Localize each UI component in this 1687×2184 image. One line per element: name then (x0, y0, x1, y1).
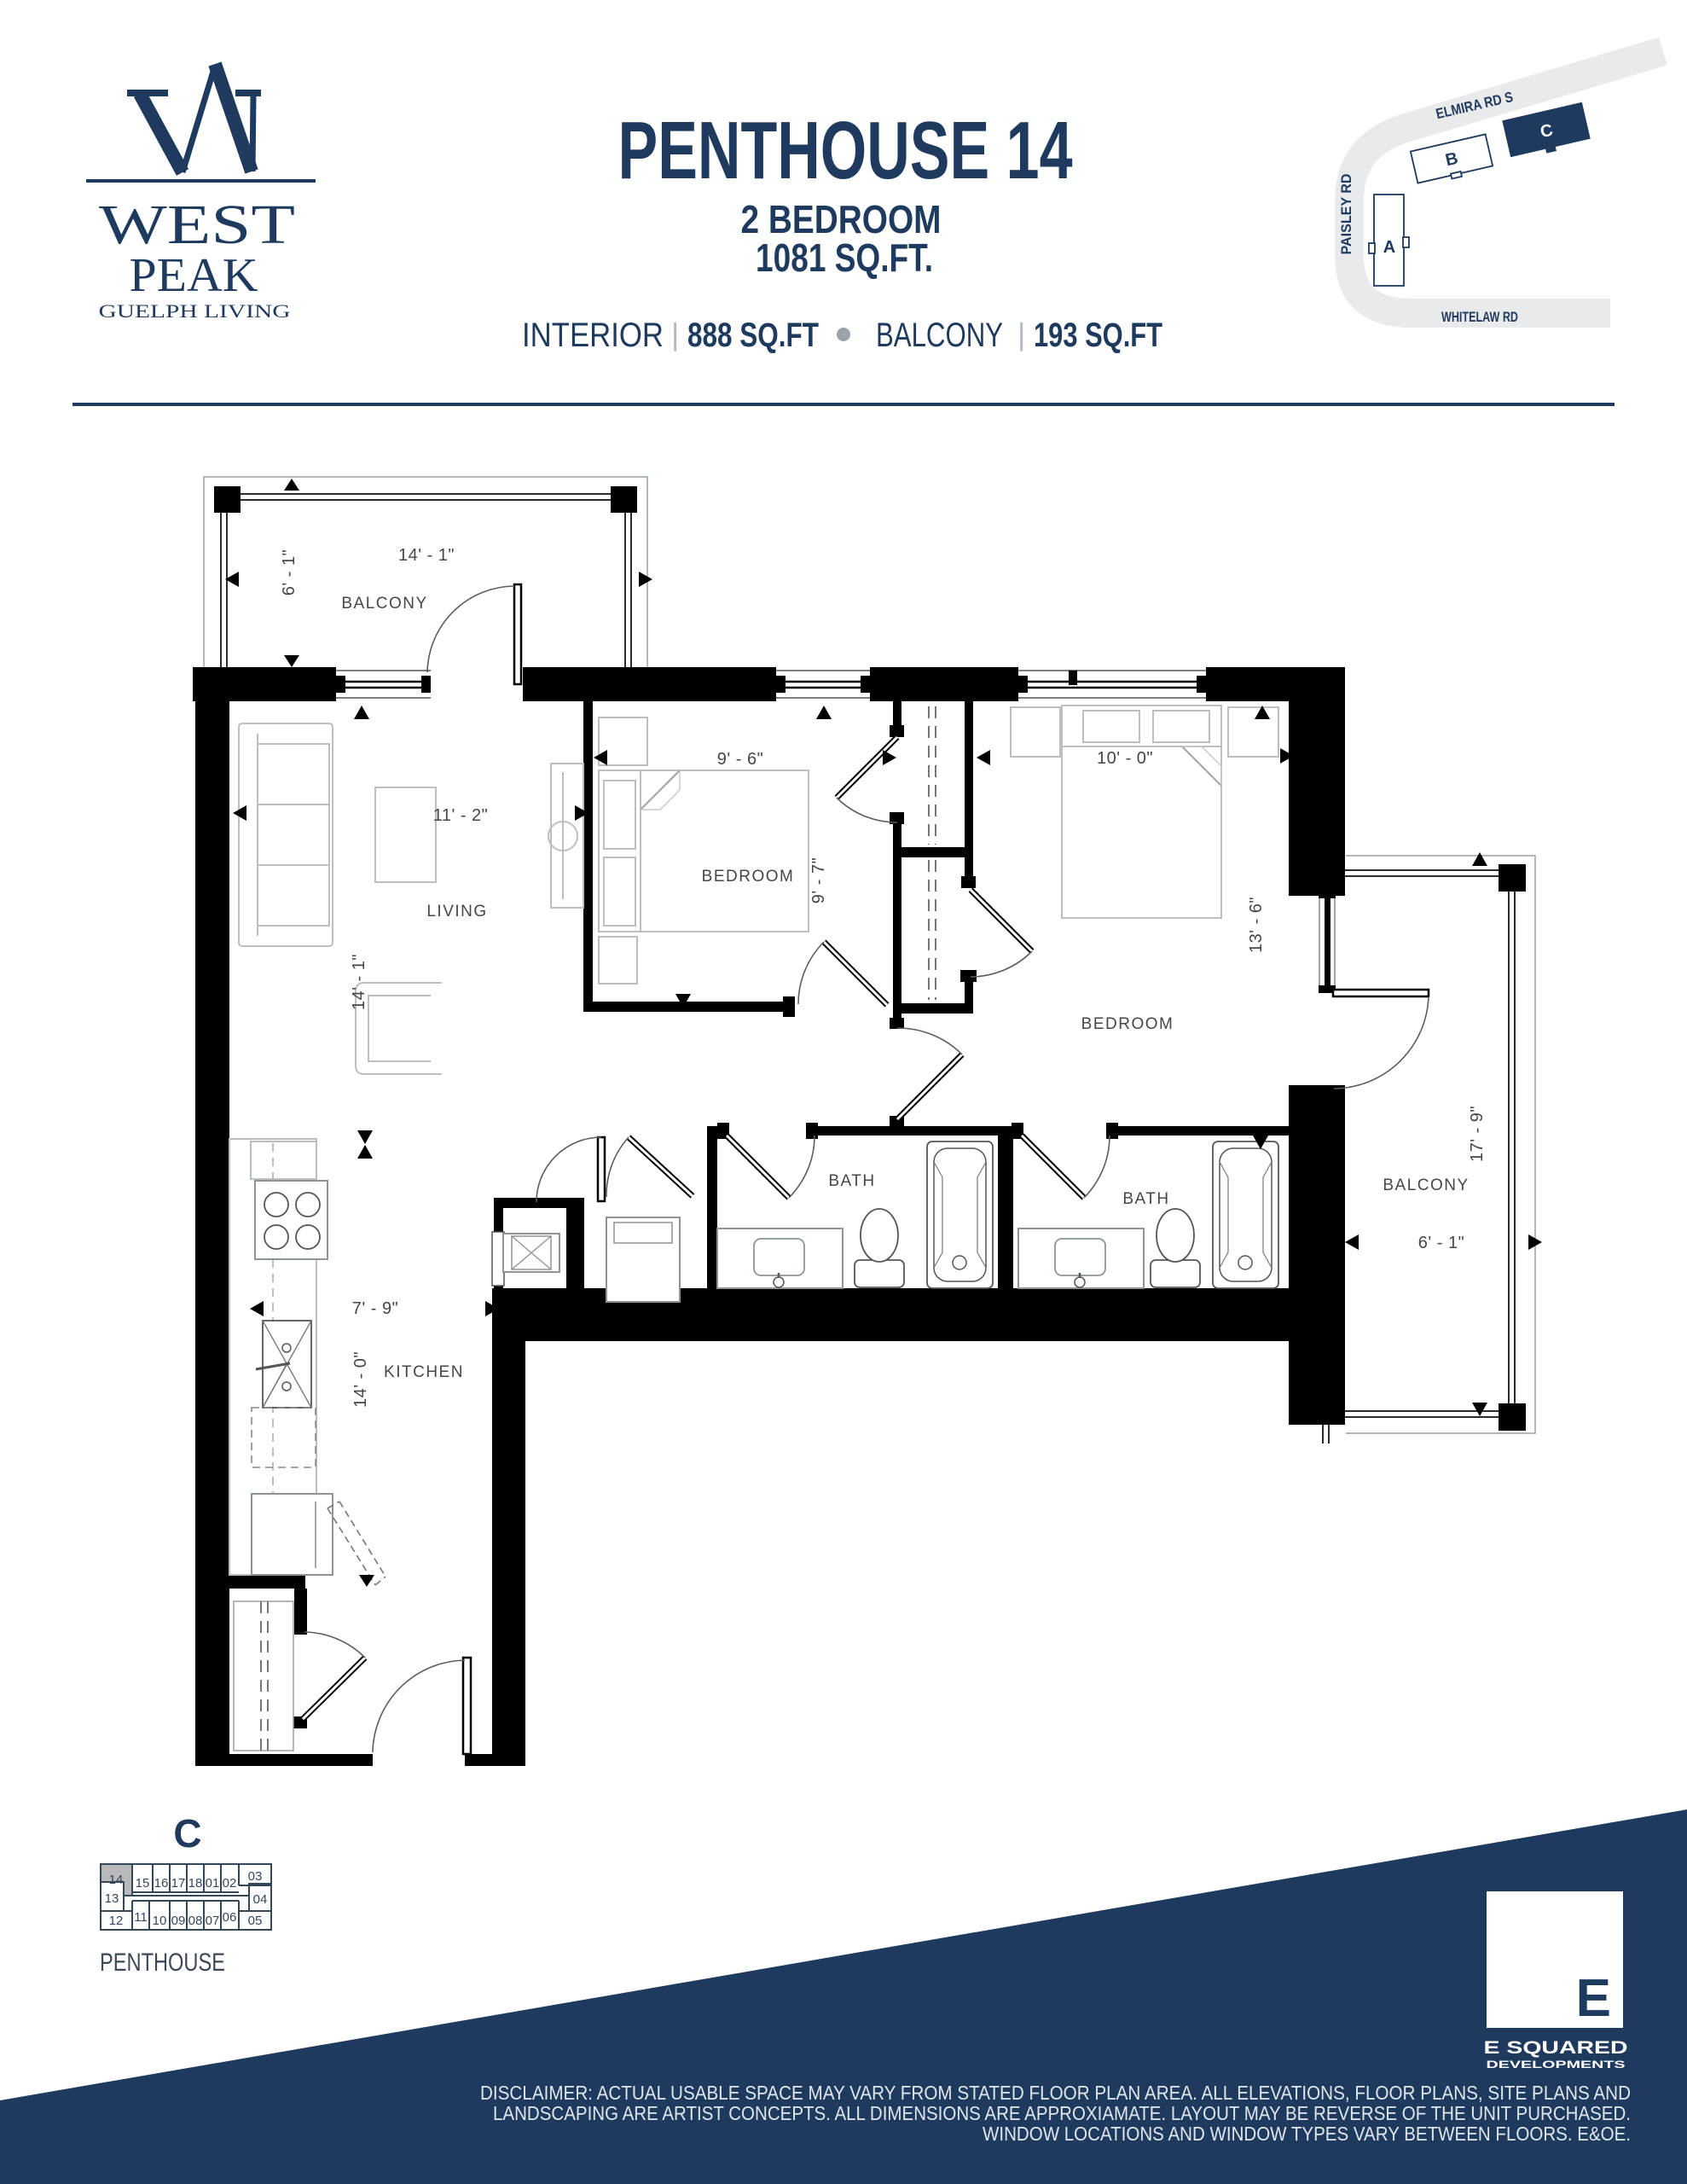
svg-text:193 SQ.FT: 193 SQ.FT (1034, 317, 1162, 354)
svg-text:17' - 9": 17' - 9" (1468, 1106, 1487, 1162)
svg-text:E SQUARED: E SQUARED (1484, 2038, 1628, 2058)
svg-text:LIVING: LIVING (426, 903, 487, 921)
svg-text:9' - 6": 9' - 6" (717, 750, 763, 769)
svg-text:BALCONY: BALCONY (1383, 1176, 1469, 1194)
svg-text:DISCLAIMER: ACTUAL USABLE SPAC: DISCLAIMER: ACTUAL USABLE SPACE MAY VARY… (480, 2082, 1631, 2104)
svg-text:PENTHOUSE 14: PENTHOUSE 14 (618, 105, 1073, 196)
svg-text:02: 02 (223, 1876, 237, 1891)
svg-text:10: 10 (153, 1914, 167, 1928)
svg-text:9' - 7": 9' - 7" (809, 857, 828, 903)
svg-text:WEST: WEST (99, 194, 295, 256)
svg-text:7' - 9": 7' - 9" (352, 1299, 398, 1318)
svg-text:PEAK: PEAK (130, 249, 258, 302)
svg-text:GUELPH LIVING: GUELPH LIVING (99, 300, 291, 322)
svg-text:A: A (1383, 238, 1395, 257)
svg-text:18: 18 (188, 1876, 203, 1891)
svg-text:14' - 1": 14' - 1" (398, 546, 455, 565)
svg-text:6' - 1": 6' - 1" (280, 549, 299, 595)
svg-text:WHITELAW RD: WHITELAW RD (1441, 309, 1518, 325)
svg-text:6' - 1": 6' - 1" (1418, 1234, 1464, 1252)
svg-text:PAISLEY RD: PAISLEY RD (1338, 174, 1354, 255)
svg-text:1081 SQ.FT.: 1081 SQ.FT. (756, 235, 933, 280)
svg-text:11' - 2": 11' - 2" (433, 806, 489, 825)
svg-text:05: 05 (248, 1914, 263, 1928)
svg-text:08: 08 (188, 1914, 203, 1928)
svg-text:LANDSCAPING ARE ARTIST CONCEPT: LANDSCAPING ARE ARTIST CONCEPTS. ALL DIM… (493, 2102, 1631, 2124)
svg-text:BATH: BATH (828, 1172, 875, 1190)
svg-text:WINDOW LOCATIONS AND WINDOW TY: WINDOW LOCATIONS AND WINDOW TYPES VARY B… (983, 2123, 1631, 2145)
svg-text:07: 07 (206, 1914, 220, 1928)
svg-text:10' - 0": 10' - 0" (1097, 749, 1153, 768)
svg-text:01: 01 (206, 1876, 220, 1891)
svg-text:14: 14 (109, 1873, 124, 1887)
svg-text:BATH: BATH (1122, 1190, 1169, 1208)
svg-text:PENTHOUSE: PENTHOUSE (100, 1949, 225, 1977)
svg-text:11: 11 (134, 1910, 148, 1925)
svg-text:13: 13 (105, 1891, 119, 1906)
svg-text:BEDROOM: BEDROOM (702, 868, 795, 886)
svg-text:14' - 0": 14' - 0" (351, 1351, 370, 1408)
svg-text:DEVELOPMENTS: DEVELOPMENTS (1487, 2059, 1626, 2071)
svg-text:04: 04 (253, 1892, 268, 1907)
svg-text:09: 09 (171, 1914, 186, 1928)
svg-text:C: C (173, 1811, 201, 1856)
svg-text:12: 12 (109, 1914, 124, 1928)
svg-text:13' - 6": 13' - 6" (1247, 897, 1266, 953)
svg-text:|: | (1017, 317, 1025, 351)
svg-text:KITCHEN: KITCHEN (384, 1363, 464, 1381)
svg-text:BALCONY: BALCONY (341, 595, 427, 613)
svg-text:888 SQ.FT: 888 SQ.FT (687, 317, 819, 354)
svg-text:15: 15 (136, 1876, 150, 1891)
svg-text:16: 16 (154, 1876, 169, 1891)
svg-text:INTERIOR: INTERIOR (522, 317, 664, 354)
svg-text:14' - 1": 14' - 1" (350, 954, 368, 1010)
svg-text:E: E (1576, 1969, 1611, 2028)
svg-text:03: 03 (248, 1869, 263, 1884)
svg-text:BALCONY: BALCONY (876, 317, 1003, 354)
svg-text:06: 06 (223, 1910, 237, 1925)
svg-text:|: | (671, 317, 679, 351)
svg-text:BEDROOM: BEDROOM (1081, 1015, 1174, 1033)
svg-text:17: 17 (171, 1876, 186, 1891)
